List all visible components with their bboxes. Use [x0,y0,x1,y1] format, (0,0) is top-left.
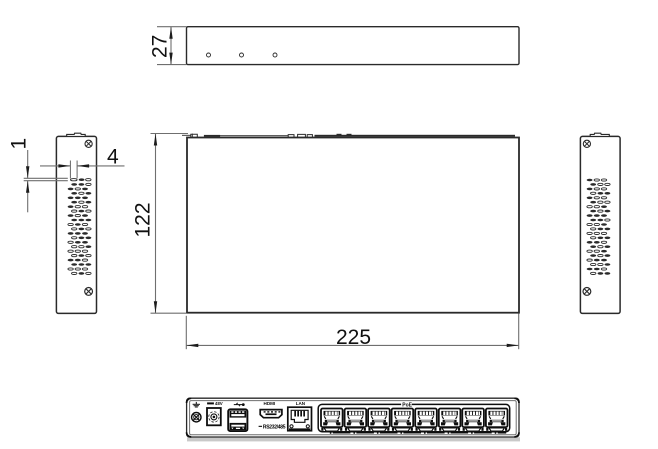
svg-text:PoE: PoE [402,402,412,408]
svg-text:48V: 48V [215,401,223,406]
svg-text:122: 122 [132,202,155,237]
svg-text:LAN: LAN [296,401,306,406]
svg-text:4: 4 [107,146,119,169]
svg-text:RS232/485: RS232/485 [263,424,286,430]
svg-text:HDMI: HDMI [264,401,276,406]
svg-text:1: 1 [8,138,31,150]
svg-text:225: 225 [336,326,371,349]
svg-text:27: 27 [149,35,172,58]
